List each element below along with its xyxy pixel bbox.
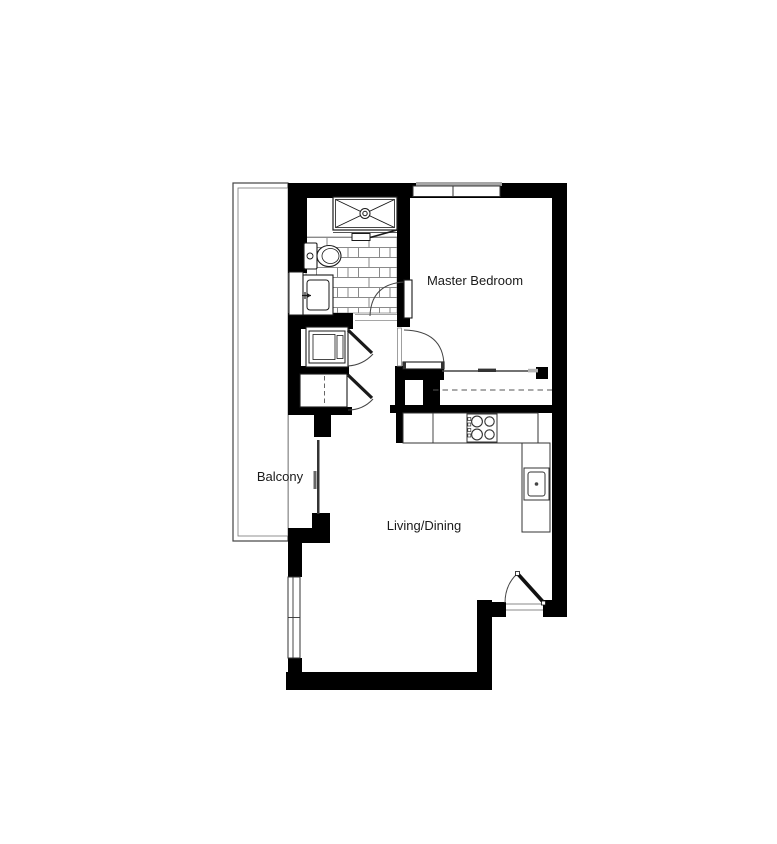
burner bbox=[485, 430, 494, 439]
burner bbox=[485, 417, 494, 426]
entry-threshold bbox=[506, 604, 543, 610]
wall-bottom bbox=[286, 672, 492, 690]
wall-entry-left bbox=[477, 602, 506, 617]
wall-west-upper bbox=[288, 543, 302, 577]
wall-balcony-door-pier bbox=[314, 407, 331, 437]
toilet-flush bbox=[307, 253, 313, 259]
window-pane bbox=[413, 186, 453, 197]
entry-door-leaf bbox=[517, 573, 545, 604]
washer-unit-panel bbox=[337, 336, 343, 359]
shower-door-pivot bbox=[352, 234, 370, 241]
vanity-cabinet bbox=[289, 272, 303, 315]
washer-unit-inner bbox=[313, 335, 335, 360]
floor-plan-drawing: Balcony bbox=[0, 0, 777, 844]
kitchen bbox=[403, 413, 550, 532]
balcony-sliding-door-panel bbox=[317, 440, 320, 514]
window-sill bbox=[416, 182, 502, 186]
linen-closet-door-leaf bbox=[348, 375, 372, 398]
washer-closet-door-arc bbox=[348, 354, 373, 366]
cooktop-knob bbox=[468, 429, 471, 432]
room-label-living-dining: Living/Dining bbox=[387, 518, 461, 533]
wall-kitchen-west bbox=[396, 413, 403, 443]
wall-below-balcony-door-a bbox=[312, 513, 330, 530]
shower-drain-inner bbox=[363, 211, 367, 215]
cooktop-knob bbox=[468, 434, 471, 437]
cooktop-knob bbox=[468, 418, 471, 421]
bedroom-door bbox=[398, 328, 445, 369]
bedroom-door-leaf-cap bbox=[441, 362, 444, 369]
floor-plan-canvas: Balcony bbox=[0, 0, 777, 844]
bedroom-door-swing-arc bbox=[404, 330, 444, 365]
cooktop-knob bbox=[468, 423, 471, 426]
wall-below-balcony-door-b bbox=[288, 528, 330, 543]
burner bbox=[472, 429, 483, 440]
kitchen-sink bbox=[524, 468, 549, 500]
balcony-door bbox=[314, 440, 320, 514]
wall-closet-divider bbox=[423, 373, 440, 412]
washer-closet-door-leaf bbox=[348, 330, 372, 353]
window-pane bbox=[453, 186, 500, 197]
entry-door-leaf-cap bbox=[516, 572, 520, 576]
room-label-master-bedroom: Master Bedroom bbox=[427, 273, 523, 288]
bathroom-door-threshold bbox=[355, 315, 397, 321]
entry-door bbox=[505, 572, 546, 611]
entry-door-hinge-cap bbox=[542, 601, 546, 605]
living-dining: Living/Dining bbox=[288, 440, 546, 658]
entry-door-swing-arc bbox=[505, 574, 517, 603]
bedroom-doorway-jamb bbox=[398, 328, 402, 366]
wall-entry-right-corner bbox=[543, 600, 567, 617]
bedroom-closet bbox=[433, 369, 552, 390]
cooktop bbox=[467, 414, 497, 442]
living-window bbox=[288, 577, 300, 658]
bathroom-vanity bbox=[289, 272, 333, 315]
linen-closet bbox=[300, 374, 373, 410]
toilet-bowl-inner bbox=[322, 249, 339, 264]
burner bbox=[472, 416, 483, 427]
wall-kitchen-top bbox=[390, 405, 567, 413]
shower bbox=[333, 197, 397, 241]
toilet bbox=[304, 243, 341, 269]
wall-east bbox=[552, 183, 567, 617]
bedroom-door-leaf bbox=[403, 362, 444, 369]
room-label-balcony: Balcony bbox=[257, 469, 304, 484]
closet-sliding-panel-overlap bbox=[478, 369, 496, 372]
kitchen-sink-drain bbox=[535, 482, 539, 486]
shower-door-leaf bbox=[370, 230, 397, 238]
bedroom-door-leaf-cap bbox=[403, 362, 406, 369]
bedroom-window bbox=[413, 182, 502, 197]
washer-closet bbox=[306, 327, 373, 367]
closet-sliding-end-cap bbox=[528, 369, 538, 373]
balcony-sliding-door-overlap bbox=[314, 471, 317, 489]
linen-closet-box bbox=[300, 374, 347, 407]
bathroom-door-leaf bbox=[404, 280, 412, 318]
